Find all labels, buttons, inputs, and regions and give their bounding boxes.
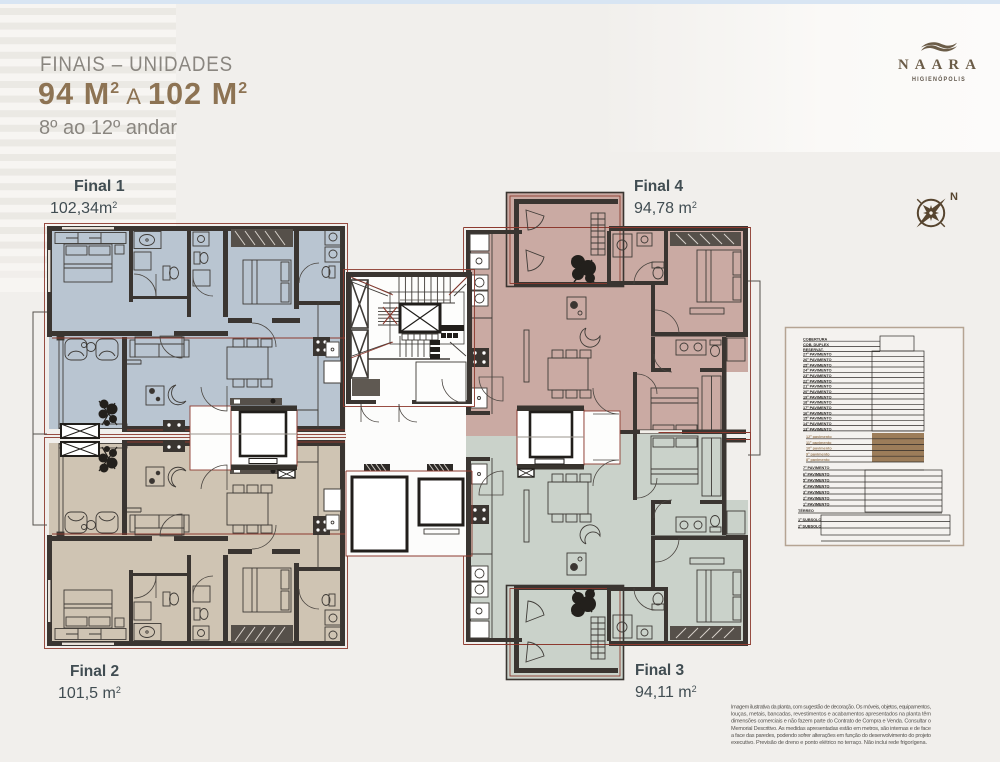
svg-text:11º pavimento: 11º pavimento [806, 441, 832, 445]
svg-text:101,5 m2: 101,5 m2 [58, 685, 121, 702]
svg-text:6º PAVIMENTO: 6º PAVIMENTO [803, 472, 830, 476]
svg-text:COBERTURA: COBERTURA [803, 338, 828, 342]
svg-text:Final 3: Final 3 [635, 662, 684, 679]
svg-text:20º PAVIMENTO: 20º PAVIMENTO [803, 390, 832, 394]
svg-text:18º PAVIMENTO: 18º PAVIMENTO [803, 401, 832, 405]
svg-text:27º PAVIMENTO: 27º PAVIMENTO [803, 353, 832, 357]
svg-text:1º PAVIMENTO: 1º PAVIMENTO [803, 502, 830, 506]
svg-text:Final 2: Final 2 [70, 663, 119, 680]
svg-text:COB. DUPLEX: COB. DUPLEX [803, 343, 829, 347]
svg-text:Final 4: Final 4 [634, 178, 683, 195]
svg-text:8º ao 12º andar: 8º ao 12º andar [39, 117, 177, 139]
svg-text:14º PAVIMENTO: 14º PAVIMENTO [803, 422, 832, 426]
svg-text:9º pavimento: 9º pavimento [806, 452, 830, 456]
svg-text:FINAIS – UNIDADES: FINAIS – UNIDADES [40, 52, 233, 76]
svg-text:23º PAVIMENTO: 23º PAVIMENTO [803, 374, 832, 378]
svg-text:10º pavimento: 10º pavimento [806, 447, 832, 451]
svg-text:a face das paredes, podendo so: a face das paredes, podendo sofrer alter… [731, 733, 931, 739]
svg-text:7º PAVIMENTO: 7º PAVIMENTO [803, 466, 830, 470]
svg-text:17º PAVIMENTO: 17º PAVIMENTO [803, 406, 832, 410]
svg-text:HIGIENÓPOLIS: HIGIENÓPOLIS [912, 75, 966, 83]
svg-text:15º PAVIMENTO: 15º PAVIMENTO [803, 417, 832, 421]
svg-text:4º PAVIMENTO: 4º PAVIMENTO [803, 484, 830, 488]
svg-text:26º PAVIMENTO: 26º PAVIMENTO [803, 358, 832, 362]
svg-text:94,78 m2: 94,78 m2 [634, 200, 697, 217]
svg-text:2º SUBSOLO: 2º SUBSOLO [798, 524, 821, 528]
svg-text:24º PAVIMENTO: 24º PAVIMENTO [803, 369, 832, 373]
svg-text:Imagem ilustrativa da planta,: Imagem ilustrativa da planta, com sugest… [731, 705, 931, 711]
svg-text:louças, metais, bancadas, reve: louças, metais, bancadas, revestimentos … [731, 712, 931, 718]
svg-text:16º PAVIMENTO: 16º PAVIMENTO [803, 411, 832, 415]
svg-text:1º SUBSOLO: 1º SUBSOLO [798, 518, 821, 522]
svg-text:NAARA: NAARA [898, 57, 982, 73]
svg-text:22º PAVIMENTO: 22º PAVIMENTO [803, 379, 832, 383]
svg-text:2º PAVIMENTO: 2º PAVIMENTO [803, 496, 830, 500]
svg-text:12º pavimento: 12º pavimento [806, 435, 832, 439]
svg-text:N: N [950, 191, 958, 203]
svg-text:21º PAVIMENTO: 21º PAVIMENTO [803, 385, 832, 389]
svg-text:25º PAVIMENTO: 25º PAVIMENTO [803, 363, 832, 367]
svg-text:Memorial Descritivo. As medida: Memorial Descritivo. As medidas apresent… [731, 726, 931, 732]
svg-text:dimensões comerciais e não faz: dimensões comerciais e não fazem parte d… [731, 719, 931, 725]
svg-text:RESERVAT.: RESERVAT. [803, 348, 824, 352]
svg-text:Final 1: Final 1 [74, 178, 125, 195]
svg-text:executivo. Previsão de dreno e: executivo. Previsão de dreno e ponto elé… [731, 740, 927, 746]
svg-text:13º PAVIMENTO: 13º PAVIMENTO [803, 427, 832, 431]
svg-text:5º PAVIMENTO: 5º PAVIMENTO [803, 478, 830, 482]
svg-text:3º PAVIMENTO: 3º PAVIMENTO [803, 490, 830, 494]
svg-text:TÉRREO: TÉRREO [798, 508, 814, 513]
svg-text:8º pavimento: 8º pavimento [806, 458, 830, 462]
svg-text:102,34m2: 102,34m2 [50, 200, 117, 217]
svg-text:19º PAVIMENTO: 19º PAVIMENTO [803, 395, 832, 399]
svg-text:94,11 m2: 94,11 m2 [635, 684, 697, 701]
